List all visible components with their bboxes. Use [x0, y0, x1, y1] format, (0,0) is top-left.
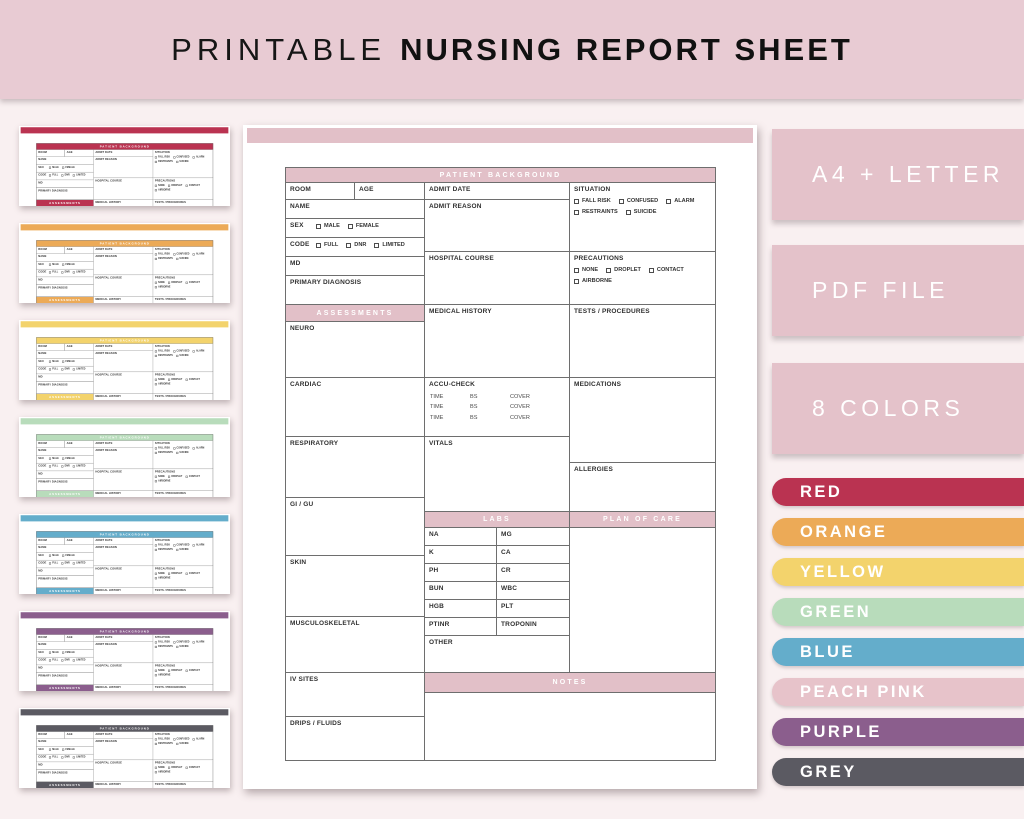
header-label: PLAN OF CARE [603, 516, 682, 523]
cell-md: MD [285, 257, 425, 276]
field-with-options: SEXMALEFEMALE [38, 263, 91, 266]
field-label: AGE [67, 733, 92, 736]
checkbox-icon [193, 350, 195, 352]
cell-medical-history: MEDICAL HISTORY [425, 305, 570, 378]
checkbox-option-fall-risk: FALL RISK [574, 198, 611, 205]
cell-code: CODEFULLDNRLIMITED [36, 172, 93, 180]
checkbox-row: RESTRAINTSSUICIDE [155, 354, 211, 357]
checkbox-label: CONTACT [189, 378, 200, 381]
checkbox-label: SUICIDE [179, 645, 188, 648]
field-label: PLT [501, 603, 565, 611]
header-notes: NOTES [425, 673, 716, 693]
field-label: MEDICAL HISTORY [95, 298, 151, 301]
checkbox-icon [186, 476, 188, 478]
accu-column-label: BS [470, 394, 510, 400]
header-label: PATIENT BACKGROUND [100, 145, 150, 148]
field-label: ROOM [38, 345, 63, 348]
checkbox-icon [168, 379, 170, 381]
checkbox-option-confused: CONFUSED [173, 156, 189, 159]
field-label: PRECAUTIONS [155, 567, 211, 570]
cell-primary-diagnosis: PRIMARY DIAGNOSIS [285, 276, 425, 305]
field-label: MD [38, 472, 91, 475]
accu-column-label: TIME [430, 415, 470, 421]
cell-tests-procedures: TESTS / PROCEDURES [153, 200, 213, 206]
field-label: TESTS / PROCEDURES [574, 308, 711, 316]
cell-admit-date: ADMIT DATE [94, 150, 154, 157]
cell-room: ROOM [36, 247, 65, 254]
checkbox-icon [49, 263, 51, 265]
header-label: PATIENT BACKGROUND [100, 533, 150, 536]
checkbox-icon [62, 457, 64, 459]
field-label: SITUATION [155, 636, 211, 639]
checkbox-option-full: FULL [316, 242, 338, 249]
checkbox-icon [186, 185, 188, 187]
checkbox-label: FEMALE [65, 457, 74, 460]
cell-plt: PLT [497, 600, 570, 618]
cell-hospital-course: HOSPITAL COURSE [94, 372, 154, 394]
cell-admit-reason: ADMIT REASON [94, 448, 154, 469]
field-label: TESTS / PROCEDURES [155, 298, 211, 301]
checkbox-label: CONFUSED [177, 447, 190, 450]
checkbox-option-airborne: AIRBORNE [155, 674, 171, 677]
field-label: ADMIT DATE [95, 539, 151, 542]
checkbox-label: DROPLET [171, 766, 182, 769]
checkbox-option-contact: CONTACT [186, 378, 200, 381]
field-label: SITUATION [574, 186, 711, 194]
cell-ca: CA [497, 546, 570, 564]
swatch-label: RED [772, 483, 842, 502]
checkbox-icon [155, 253, 157, 255]
checkbox-option-contact: CONTACT [186, 184, 200, 187]
checkbox-option-confused: CONFUSED [173, 447, 189, 450]
checkbox-row: NONEDROPLETCONTACT [155, 184, 211, 187]
field-label: MEDICAL HISTORY [95, 201, 151, 204]
checkbox-icon [155, 670, 157, 672]
checkbox-option-female: FEMALE [62, 748, 75, 751]
header-assessments: ASSESSMENTS [285, 305, 425, 322]
checkbox-label: AIRBORNE [158, 286, 170, 289]
checkbox-icon [62, 166, 64, 168]
field-label: AGE [67, 636, 92, 639]
checkbox-label: FULL [52, 465, 58, 468]
field-label: AGE [67, 539, 92, 542]
checkbox-option-contact: CONTACT [186, 669, 200, 672]
field-label: MD [38, 666, 91, 669]
field-label: ADMIT DATE [95, 248, 151, 251]
field-label: AGE [67, 248, 92, 251]
checkbox-option-droplet: DROPLET [168, 766, 182, 769]
header-label: PATIENT BACKGROUND [100, 436, 150, 439]
field-label: MEDICAL HISTORY [95, 783, 151, 786]
checkbox-option-female: FEMALE [348, 223, 379, 230]
swatch-purple: PURPLE [772, 718, 1024, 746]
checkbox-icon [73, 562, 75, 564]
thumbnail-scale-wrap: PATIENT BACKGROUNDASSESSMENTSLABSPLAN OF… [19, 126, 230, 206]
checkbox-label: FEMALE [65, 263, 74, 266]
cell-na: NA [425, 528, 497, 546]
cell-precautions: PRECAUTIONSNONEDROPLETCONTACTAIRBORNE [153, 566, 213, 588]
checkbox-label: LIMITED [76, 562, 85, 565]
checkbox-icon [155, 767, 157, 769]
field-with-options: CODEFULLDNRLIMITED [38, 659, 91, 662]
checkbox-icon [186, 670, 188, 672]
thumbnail-purple: PATIENT BACKGROUNDASSESSMENTSLABSPLAN OF… [19, 611, 230, 691]
checkbox-label: CONFUSED [177, 350, 190, 353]
field-label: NA [429, 531, 492, 539]
checkbox-icon [173, 350, 175, 352]
field-label: SITUATION [155, 248, 211, 251]
field-with-options: CODEFULLDNRLIMITED [38, 562, 91, 565]
checkbox-option-limited: LIMITED [73, 368, 85, 371]
field-label: NAME [38, 643, 91, 646]
checkbox-icon [155, 379, 157, 381]
cell-tests-procedures: TESTS / PROCEDURES [153, 491, 213, 497]
checkbox-label: LIMITED [76, 465, 85, 468]
swatch-blue: BLUE [772, 638, 1024, 666]
checkbox-row: NONEDROPLETCONTACT [155, 281, 211, 284]
badge-label: PDF FILE [772, 277, 949, 304]
checkbox-option-male: MALE [316, 223, 340, 230]
field-label: OTHER [429, 639, 565, 647]
checkbox-label: NONE [158, 281, 165, 284]
cell-name: NAME [36, 254, 93, 262]
checkbox-option-none: NONE [155, 475, 165, 478]
checkbox-icon [619, 199, 624, 204]
checkbox-icon [374, 243, 379, 248]
checkbox-label: ALARM [196, 253, 204, 256]
field-label: SEX [38, 166, 49, 169]
field-with-options: SEXMALEFEMALE [38, 651, 91, 654]
checkbox-icon [49, 659, 51, 661]
swatch-label: GREY [772, 763, 857, 782]
thumbnail-scale-wrap: PATIENT BACKGROUNDASSESSMENTSLABSPLAN OF… [19, 320, 230, 400]
cell-name: NAME [36, 448, 93, 456]
checkbox-label: DNR [65, 368, 70, 371]
checkbox-label: RESTRAINTS [158, 548, 173, 551]
checkbox-icon [186, 379, 188, 381]
header-assessments: ASSESSMENTS [36, 782, 93, 788]
sheet-accent-topbar [21, 418, 229, 424]
report-sheet-page: PATIENT BACKGROUNDASSESSMENTSLABSPLAN OF… [19, 126, 230, 206]
checkbox-icon [155, 577, 157, 579]
checkbox-icon [62, 554, 64, 556]
checkbox-icon [155, 355, 157, 357]
checkbox-option-confused: CONFUSED [173, 544, 189, 547]
header-assessments: ASSESSMENTS [36, 200, 93, 206]
cell-skin: SKIN [285, 556, 425, 617]
checkbox-row: AIRBORNE [155, 480, 211, 483]
cell-name: NAME [36, 157, 93, 165]
field-label: ADMIT DATE [95, 151, 151, 154]
checkbox-label: DNR [65, 174, 70, 177]
field-label: PRECAUTIONS [155, 761, 211, 764]
checkbox-option-droplet: DROPLET [168, 572, 182, 575]
swatch-label: ORANGE [772, 523, 887, 542]
checkbox-option-dnr: DNR [346, 242, 366, 249]
cell-sex: SEXMALEFEMALE [36, 456, 93, 464]
cell-hospital-course: HOSPITAL COURSE [94, 566, 154, 588]
checkbox-option-dnr: DNR [61, 174, 69, 177]
checkbox-icon [49, 174, 51, 176]
sheet-accent-topbar [21, 321, 229, 327]
field-label: NAME [38, 255, 91, 258]
field-label: ADMIT REASON [95, 352, 151, 355]
checkbox-option-none: NONE [155, 378, 165, 381]
field-with-options: CODEFULLDNRLIMITED [38, 368, 91, 371]
checkbox-label: RESTRAINTS [158, 257, 173, 260]
field-with-options: SEXMALEFEMALE [38, 457, 91, 460]
checkbox-row: FALL RISKCONFUSEDALARM [155, 544, 211, 547]
checkbox-icon [61, 271, 63, 273]
field-label: AGE [67, 151, 92, 154]
report-sheet-page: PATIENT BACKGROUNDASSESSMENTSLABSPLAN OF… [19, 223, 230, 303]
field-label: MD [290, 260, 420, 268]
checkbox-label: DROPLET [171, 281, 182, 284]
field-label: ALLERGIES [574, 466, 711, 474]
checkbox-option-male: MALE [49, 263, 59, 266]
swatch-orange: ORANGE [772, 518, 1024, 546]
field-label: K [429, 549, 492, 557]
cell-admit-date: ADMIT DATE [94, 635, 154, 642]
checkbox-label: FALL RISK [582, 198, 611, 205]
field-label: HOSPITAL COURSE [95, 470, 151, 473]
checkbox-icon [155, 286, 157, 288]
checkbox-label: AIRBORNE [158, 480, 170, 483]
cell-wbc: WBC [497, 582, 570, 600]
checkbox-label: AIRBORNE [158, 383, 170, 386]
checkbox-icon [49, 465, 51, 467]
checkbox-icon [49, 368, 51, 370]
checkbox-label: FALL RISK [158, 641, 170, 644]
checkbox-label: NONE [158, 572, 165, 575]
swatch-yellow: YELLOW [772, 558, 1024, 586]
checkbox-label: CONFUSED [177, 253, 190, 256]
cell-tests-procedures: TESTS / PROCEDURES [153, 394, 213, 400]
field-label: TESTS / PROCEDURES [155, 201, 211, 204]
report-sheet-page: PATIENT BACKGROUNDASSESSMENTSLABSPLAN OF… [19, 708, 230, 788]
checkbox-option-confused: CONFUSED [173, 253, 189, 256]
checkbox-label: NONE [158, 475, 165, 478]
field-label: ROOM [38, 636, 63, 639]
field-label: CARDIAC [290, 381, 420, 389]
cell-situation: SITUATIONFALL RISKCONFUSEDALARMRESTRAINT… [570, 183, 716, 252]
checkbox-label: FULL [52, 271, 58, 274]
cell-admit-date: ADMIT DATE [94, 538, 154, 545]
checkbox-option-droplet: DROPLET [168, 184, 182, 187]
cell-precautions: PRECAUTIONSNONEDROPLETCONTACTAIRBORNE [153, 469, 213, 491]
checkbox-icon [155, 383, 157, 385]
swatch-grey: GREY [772, 758, 1024, 786]
field-label: MEDICAL HISTORY [95, 492, 151, 495]
checkbox-icon [574, 268, 579, 273]
report-sheet-table: PATIENT BACKGROUNDASSESSMENTSLABSPLAN OF… [36, 725, 213, 788]
cell-medical-history: MEDICAL HISTORY [94, 588, 154, 594]
checkbox-icon [176, 743, 178, 745]
thumbnail-yellow: PATIENT BACKGROUNDASSESSMENTSLABSPLAN OF… [19, 320, 230, 400]
cell-md: MD [36, 471, 93, 479]
checkbox-option-alarm: ALARM [193, 350, 205, 353]
cell-ph: PH [425, 564, 497, 582]
checkbox-icon [173, 738, 175, 740]
header-assessments: ASSESSMENTS [36, 491, 93, 497]
checkbox-row: RESTRAINTSSUICIDE [155, 742, 211, 745]
cell-musculoskeletal: MUSCULOSKELETAL [285, 617, 425, 673]
field-label: PRIMARY DIAGNOSIS [290, 279, 420, 287]
cell-admit-reason: ADMIT REASON [94, 157, 154, 178]
field-label: MEDICAL HISTORY [429, 308, 565, 316]
swatch-red: RED [772, 478, 1024, 506]
checkbox-label: FALL RISK [158, 156, 170, 159]
checkbox-option-restraints: RESTRAINTS [155, 742, 173, 745]
checkbox-option-fall-risk: FALL RISK [155, 253, 170, 256]
field-label: AGE [359, 186, 420, 194]
checkbox-row: AIRBORNE [155, 674, 211, 677]
checkbox-option-full: FULL [49, 562, 58, 565]
checkbox-label: ALARM [196, 544, 204, 547]
field-label: NAME [38, 352, 91, 355]
checkbox-icon [49, 271, 51, 273]
field-label: SEX [38, 554, 49, 557]
checkbox-label: RESTRAINTS [158, 742, 173, 745]
checkbox-label: RESTRAINTS [582, 209, 618, 216]
checkbox-label: AIRBORNE [582, 278, 612, 285]
header-assessments: ASSESSMENTS [36, 394, 93, 400]
checkbox-option-fall-risk: FALL RISK [155, 447, 170, 450]
cell-md: MD [36, 568, 93, 576]
cell-name: NAME [36, 739, 93, 747]
field-label: CA [501, 549, 565, 557]
cell-age: AGE [65, 150, 94, 157]
checkbox-label: MALE [52, 554, 59, 557]
cell-age: AGE [65, 732, 94, 739]
field-label: CODE [38, 562, 49, 565]
checkbox-label: DNR [65, 659, 70, 662]
sheet-accent-topbar [21, 224, 229, 230]
checkbox-option-fall-risk: FALL RISK [155, 156, 170, 159]
field-with-options: CODEFULLDNRLIMITED [38, 271, 91, 274]
header-label: ASSESSMENTS [49, 493, 81, 496]
accu-check-row: TIMEBSCOVER [429, 404, 565, 410]
cell-md: MD [36, 180, 93, 188]
checkbox-label: CONTACT [189, 281, 200, 284]
cell-name: NAME [285, 200, 425, 219]
checkbox-icon [173, 447, 175, 449]
checkbox-icon [316, 243, 321, 248]
sheet-accent-topbar [21, 127, 229, 133]
report-sheet-table: PATIENT BACKGROUNDASSESSMENTSLABSPLAN OF… [36, 337, 213, 400]
checkbox-label: CONFUSED [177, 641, 190, 644]
checkbox-label: FULL [324, 242, 338, 249]
cell-drips-fluids: DRIPS / FLUIDS [285, 717, 425, 761]
checkbox-icon [193, 447, 195, 449]
swatch-green: GREEN [772, 598, 1024, 626]
field-label: NAME [38, 158, 91, 161]
notes-area [425, 693, 716, 761]
checkbox-option-contact: CONTACT [649, 267, 684, 274]
cell-cardiac: CARDIAC [285, 378, 425, 437]
checkbox-icon [49, 166, 51, 168]
field-label: MD [38, 278, 91, 281]
header-label: ASSESSMENTS [49, 590, 81, 593]
checkbox-label: MALE [52, 166, 59, 169]
checkbox-icon [186, 767, 188, 769]
checkbox-icon [73, 659, 75, 661]
checkbox-label: AIRBORNE [158, 771, 170, 774]
checkbox-label: SUICIDE [179, 548, 188, 551]
checkbox-option-limited: LIMITED [73, 271, 85, 274]
cell-md: MD [36, 277, 93, 285]
checkbox-option-restraints: RESTRAINTS [155, 645, 173, 648]
checkbox-icon [155, 447, 157, 449]
field-label: TESTS / PROCEDURES [155, 783, 211, 786]
checkbox-row: AIRBORNE [574, 278, 711, 285]
field-label: ROOM [38, 442, 63, 445]
checkbox-icon [73, 271, 75, 273]
checkbox-icon [155, 573, 157, 575]
field-label: PRIMARY DIAGNOSIS [38, 189, 91, 192]
field-label: ADMIT DATE [95, 733, 151, 736]
field-label: HOSPITAL COURSE [95, 179, 151, 182]
checkbox-label: LIMITED [382, 242, 404, 249]
checkbox-label: NONE [158, 378, 165, 381]
thumbnail-scale-wrap: PATIENT BACKGROUNDASSESSMENTSLABSPLAN OF… [19, 611, 230, 691]
checkbox-icon [155, 189, 157, 191]
checkbox-icon [168, 185, 170, 187]
accu-column-label: BS [470, 404, 510, 410]
header-label: ASSESSMENTS [49, 202, 81, 205]
cell-age: AGE [65, 247, 94, 254]
cell-hospital-course: HOSPITAL COURSE [94, 275, 154, 297]
checkbox-label: NONE [158, 669, 165, 672]
checkbox-icon [193, 738, 195, 740]
sheet-accent-topbar [21, 612, 229, 618]
cell-name: NAME [36, 642, 93, 650]
checkbox-label: SUICIDE [634, 209, 657, 216]
thumbnail-green: PATIENT BACKGROUNDASSESSMENTSLABSPLAN OF… [19, 417, 230, 497]
field-label: PRIMARY DIAGNOSIS [38, 480, 91, 483]
checkbox-icon [155, 544, 157, 546]
checkbox-label: AIRBORNE [158, 577, 170, 580]
checkbox-row: FALL RISKCONFUSEDALARM [155, 641, 211, 644]
checkbox-label: FEMALE [65, 166, 74, 169]
title-bold: NURSING REPORT SHEET [400, 32, 853, 68]
checkbox-row: RESTRAINTSSUICIDE [155, 451, 211, 454]
checkbox-option-female: FEMALE [62, 263, 75, 266]
checkbox-label: DROPLET [171, 475, 182, 478]
cell-age: AGE [65, 635, 94, 642]
badge-8-colors: 8 COLORS [772, 363, 1024, 454]
checkbox-option-confused: CONFUSED [619, 198, 658, 205]
report-sheet-table: PATIENT BACKGROUNDASSESSMENTSLABSPLAN OF… [36, 531, 213, 594]
cell-troponin: TROPONIN [497, 618, 570, 636]
checkbox-option-alarm: ALARM [193, 156, 205, 159]
checkbox-icon [62, 263, 64, 265]
field-label: TROPONIN [501, 621, 565, 629]
checkbox-label: CONTACT [189, 669, 200, 672]
checkbox-icon [193, 253, 195, 255]
field-label: TESTS / PROCEDURES [155, 492, 211, 495]
checkbox-option-fall-risk: FALL RISK [155, 350, 170, 353]
checkbox-label: ALARM [196, 641, 204, 644]
field-label: PRECAUTIONS [155, 664, 211, 667]
cell-md: MD [36, 762, 93, 770]
checkbox-icon [193, 641, 195, 643]
badge-a4-letter: A4 + LETTER [772, 129, 1024, 220]
report-sheet-table: PATIENT BACKGROUNDASSESSMENTSLABSPLAN OF… [36, 143, 213, 206]
field-label: MEDICAL HISTORY [95, 589, 151, 592]
checkbox-option-airborne: AIRBORNE [155, 577, 171, 580]
checkbox-option-female: FEMALE [62, 360, 75, 363]
